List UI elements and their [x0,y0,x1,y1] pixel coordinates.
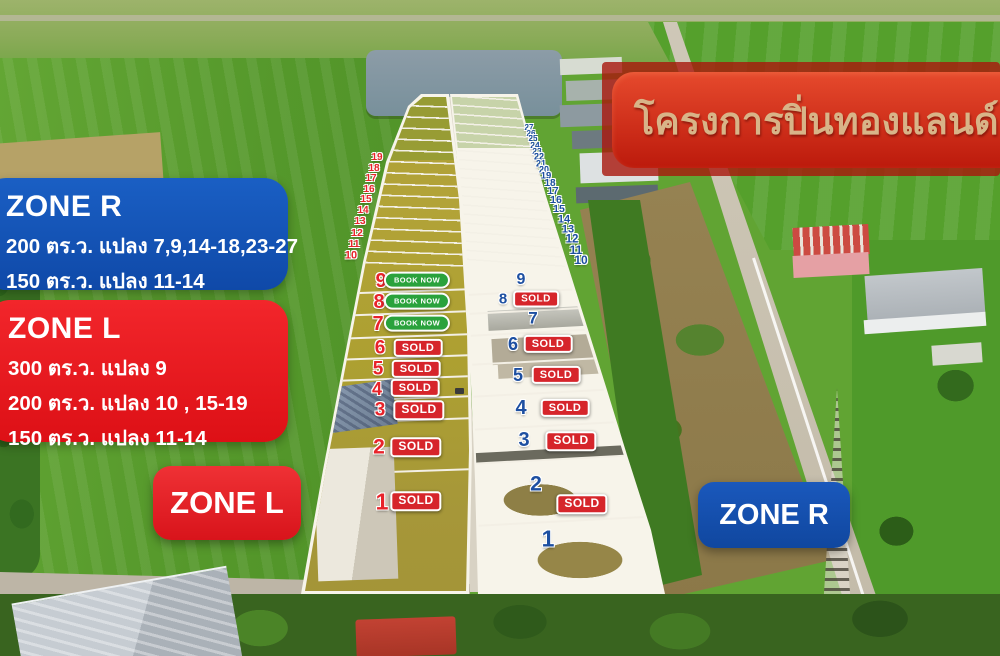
upper-plot-number: 19 [371,153,382,163]
distant-road [0,15,1000,21]
plot-number: 3 [375,401,386,420]
upper-plot-number: 14 [357,206,368,216]
plot-number: 7 [528,310,537,327]
plot-number: 4 [515,398,526,418]
zone-l-legend-card: ZONE L 300 ตร.ว. แปลง 9 200 ตร.ว. แปลง 1… [0,300,288,442]
plot-number: 1 [376,491,389,514]
sold-badge: SOLD [524,335,573,353]
aerial-site-plan: 9 8 7 6 5 4 3 2 1 BOOK NOW BOOK NOW BOOK… [0,0,1000,656]
parked-car [455,388,464,394]
sold-badge: SOLD [532,366,581,384]
zone-l-marker: ZONE L [153,466,301,540]
sold-badge: SOLD [392,360,441,378]
upper-plot-number: 10 [574,254,587,266]
sold-badge: SOLD [393,400,444,420]
book-now-badge: BOOK NOW [384,293,450,310]
zone-l-legend-line: 150 ตร.ว. แปลง 11-14 [8,422,278,455]
shed [931,342,982,365]
upper-plot-number: 12 [351,228,363,239]
project-title: โครงการปิ่นทองแลนด์ [612,90,999,151]
red-roof-house [355,616,456,656]
upper-plot-number: 17 [365,174,376,184]
zone-r-legend-card: ZONE R 200 ตร.ว. แปลง 7,9,14-18,23-27 15… [0,178,288,290]
plot-number: 9 [517,272,526,288]
plot-number: 4 [372,380,382,398]
upper-plot-number: 15 [360,195,371,205]
sold-badge: SOLD [541,399,590,417]
pink-factory [792,252,869,278]
zone-l-legend-title: ZONE L [8,312,278,346]
sold-badge: SOLD [391,379,440,397]
plot-number: 1 [542,528,555,551]
upper-plot-number: 13 [354,217,365,227]
plot-number: 7 [372,314,383,334]
plot-number: 8 [499,292,507,307]
sold-badge: SOLD [545,431,596,451]
zone-r-legend-line: 150 ตร.ว. แปลง 11-14 [6,265,276,298]
book-now-badge: BOOK NOW [384,315,450,332]
zone-l-legend-line: 200 ตร.ว. แปลง 10 , 15-19 [8,387,278,420]
sold-badge: SOLD [390,491,441,511]
zone-l-legend-line: 300 ตร.ว. แปลง 9 [8,352,278,385]
sold-badge: SOLD [513,291,559,308]
plot-number: 8 [373,292,384,312]
project-banner: โครงการปิ่นทองแลนด์ [612,72,1000,168]
upper-plot-number: 11 [348,239,359,250]
zone-r-marker: ZONE R [698,482,850,548]
sold-badge: SOLD [556,494,607,514]
zone-r-legend-line: 200 ตร.ว. แปลง 7,9,14-18,23-27 [6,230,276,263]
zone-r-legend-title: ZONE R [6,190,276,224]
plot-number: 5 [373,360,384,379]
plot-number: 2 [373,437,385,458]
sold-badge: SOLD [394,339,443,357]
sold-badge: SOLD [390,437,441,457]
plot-number: 6 [375,339,386,358]
plot-number: 3 [518,430,529,450]
book-now-badge: BOOK NOW [384,272,450,289]
plot-number: 2 [530,474,542,495]
upper-plot-number: 10 [345,251,357,262]
plot-number: 5 [513,366,523,384]
plot-number: 6 [508,335,518,353]
